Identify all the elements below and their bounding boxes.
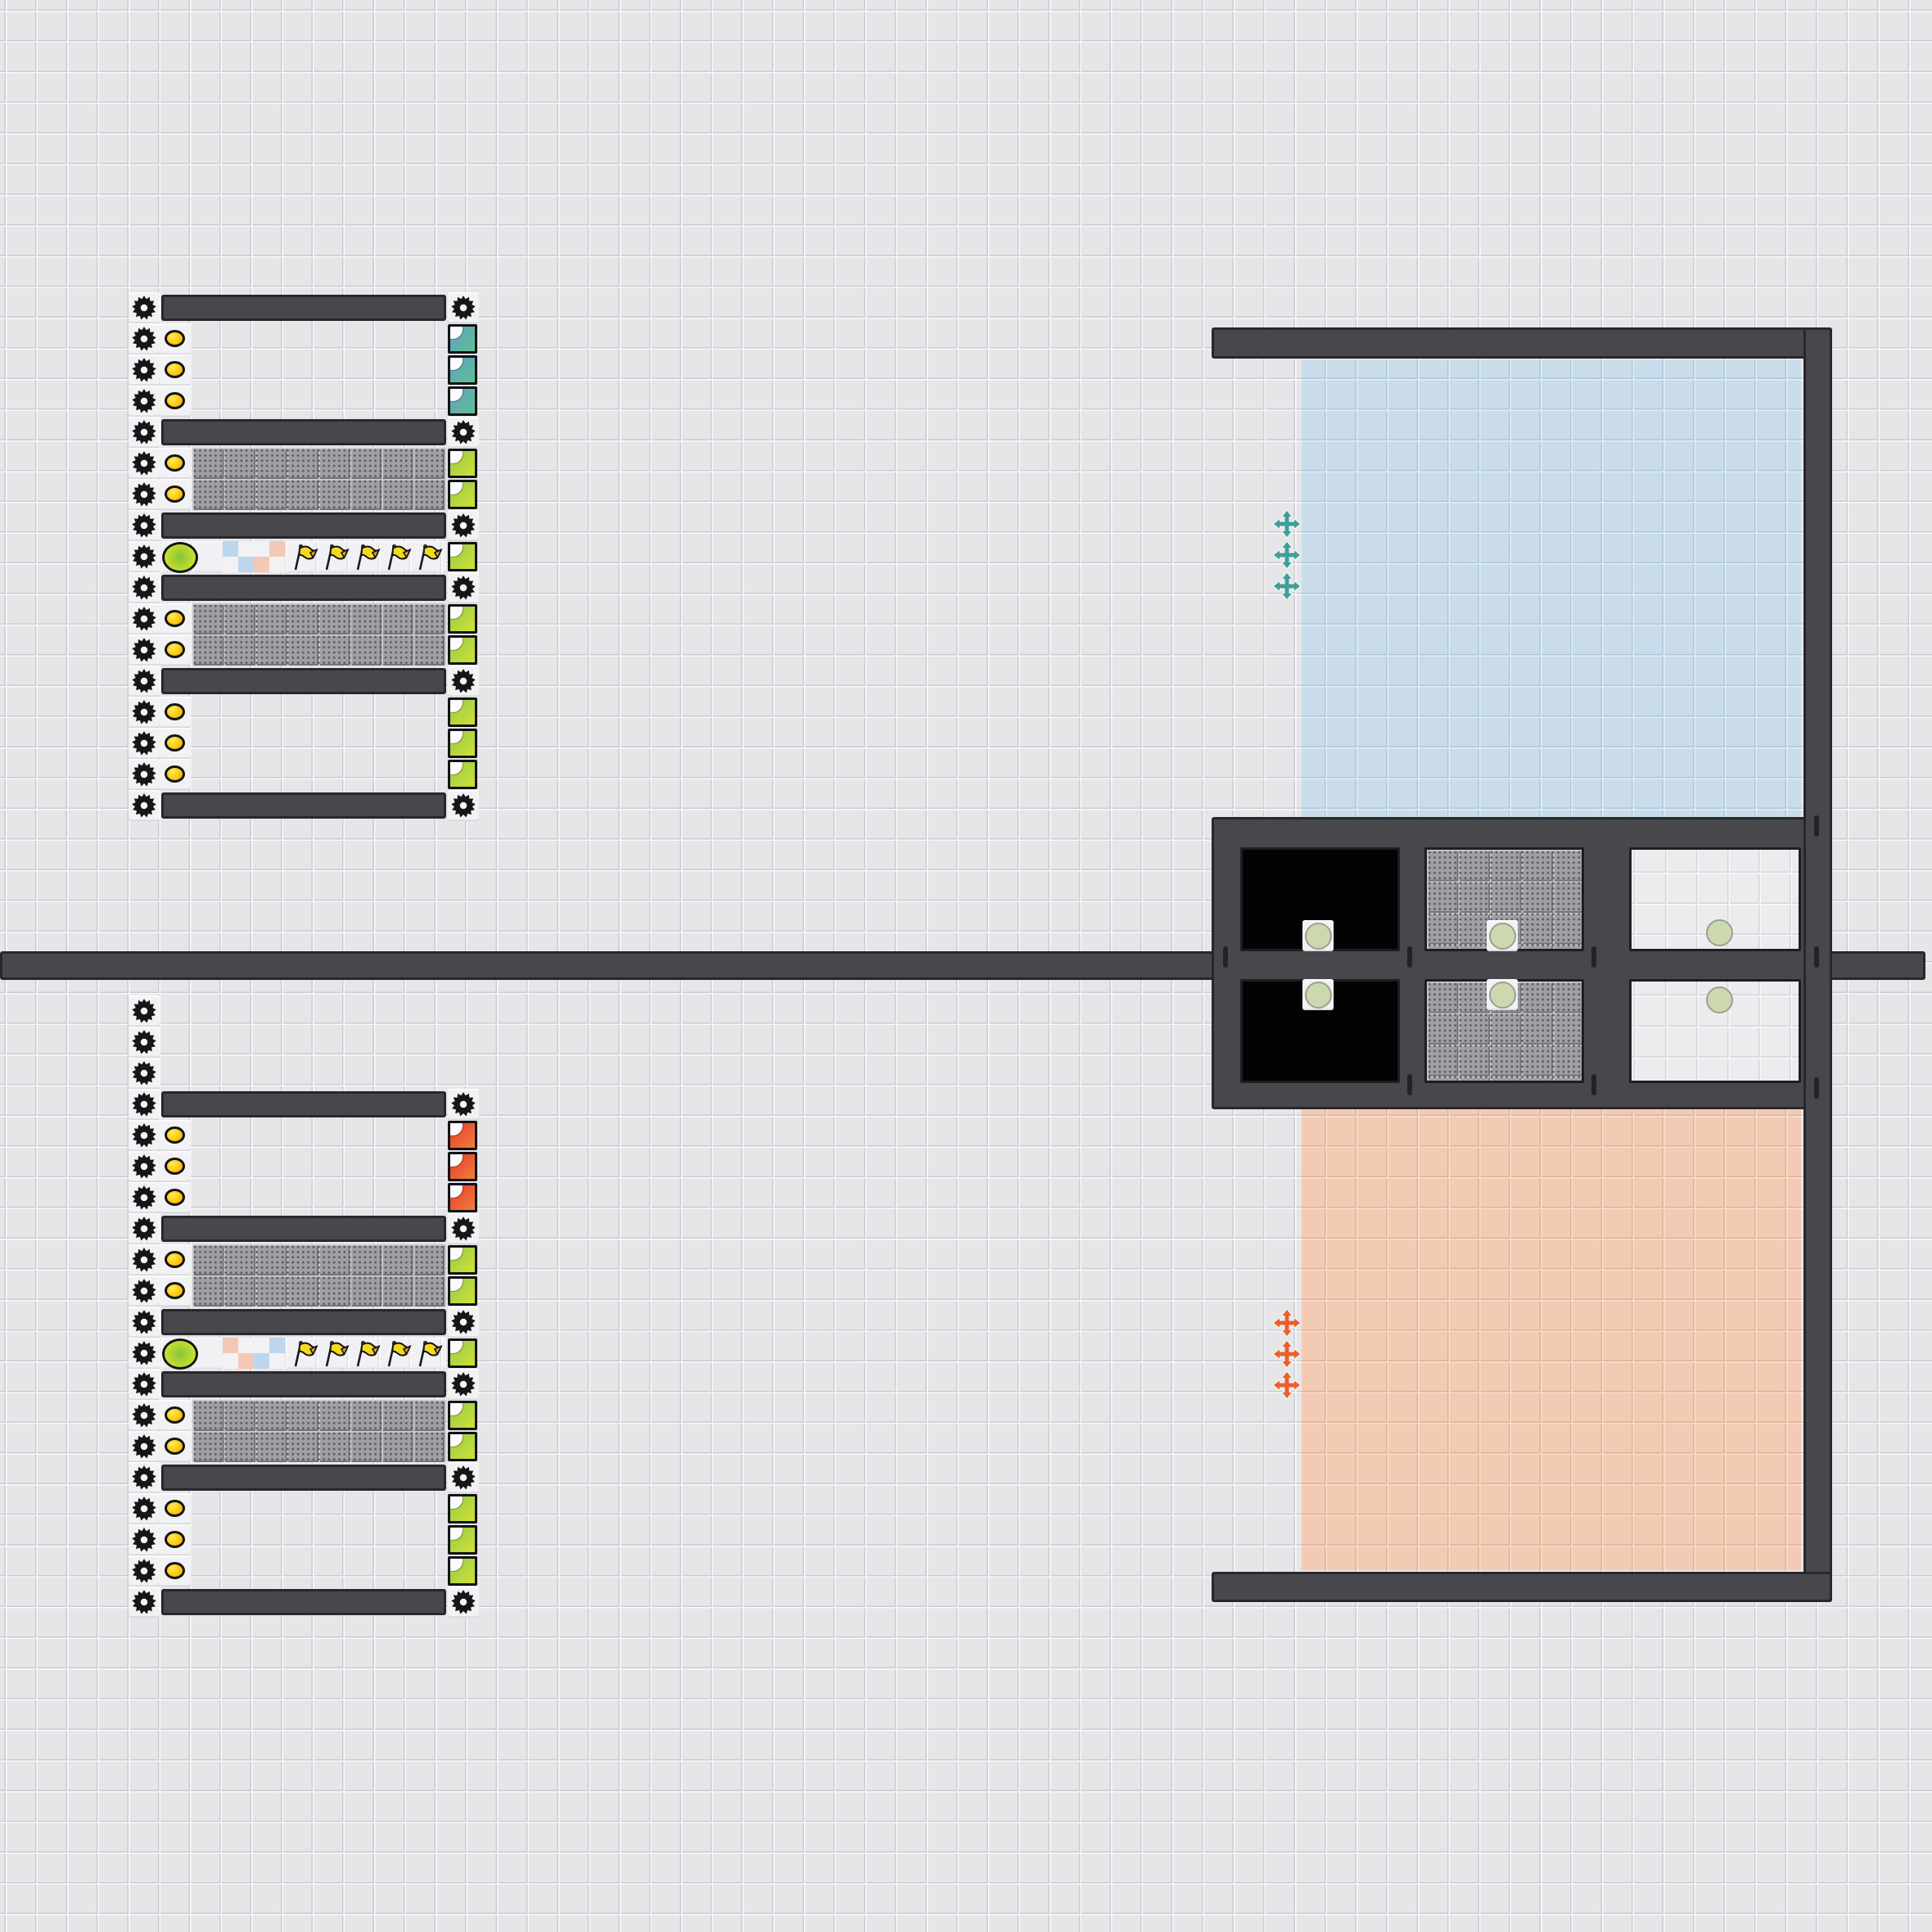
flag-icon[interactable] [351,1338,381,1368]
conveyor-bar-east[interactable] [1830,951,1925,980]
rack-bar[interactable] [161,1465,446,1491]
gear-icon[interactable] [130,1059,158,1087]
flag-icon[interactable] [351,542,381,571]
move-cross-icon-teal[interactable] [1272,540,1302,570]
rack-bar[interactable] [161,1371,446,1397]
door-tick [1814,1077,1819,1099]
io-dot[interactable] [165,765,185,783]
item-card-teal[interactable] [448,386,477,416]
flag-icon[interactable] [413,542,443,571]
rack-bar[interactable] [161,1589,446,1615]
gear-icon[interactable] [449,792,477,819]
feed-circle[interactable] [1489,982,1516,1009]
gear-icon[interactable] [130,792,158,819]
item-card-green[interactable] [448,1494,477,1523]
flag-icon[interactable] [382,1338,412,1368]
item-card-green[interactable] [448,1245,477,1275]
gear-icon[interactable] [449,667,477,695]
move-cross-icon-teal[interactable] [1272,509,1302,539]
gear-icon[interactable] [130,667,158,695]
gear-icon[interactable] [130,1246,158,1274]
feed-circle[interactable] [1706,986,1733,1013]
gear-icon[interactable] [449,574,477,602]
gear-icon[interactable] [130,1028,158,1056]
flag-icon[interactable] [320,1338,350,1368]
gear-icon[interactable] [130,418,158,446]
io-dot[interactable] [165,1562,185,1579]
zone-blue [1302,360,1801,817]
io-dot[interactable] [165,641,185,658]
io-dot[interactable] [165,1500,185,1517]
item-card-green[interactable] [448,449,477,478]
item-card-green[interactable] [448,542,477,571]
rack-bar[interactable] [161,668,446,694]
rack-bar[interactable] [161,1216,446,1242]
gear-icon[interactable] [130,1122,158,1149]
start-orb[interactable] [162,542,198,573]
gear-icon[interactable] [449,418,477,446]
flag-icon[interactable] [382,542,412,571]
item-card-green[interactable] [448,1556,477,1586]
door-tick [1407,1074,1412,1095]
feed-circle[interactable] [1305,982,1332,1009]
gear-icon[interactable] [130,1402,158,1429]
item-card-green[interactable] [448,1432,477,1461]
checker-marker-blue[interactable] [254,1338,285,1369]
rack-bar[interactable] [161,1309,446,1335]
gear-icon[interactable] [130,1495,158,1523]
rack-bar[interactable] [161,295,446,321]
checker-marker-pink[interactable] [254,541,285,572]
depot-bottom-wall[interactable] [1212,1572,1832,1602]
gear-icon[interactable] [130,1433,158,1460]
gear-icon[interactable] [449,1090,477,1118]
gear-icon[interactable] [130,1370,158,1398]
item-card-red[interactable] [448,1121,477,1150]
rack-bar[interactable] [161,792,446,819]
move-cross-icon-orange[interactable] [1272,1370,1302,1400]
rack-bar[interactable] [161,575,446,601]
gear-icon[interactable] [130,1277,158,1305]
item-card-green[interactable] [448,760,477,789]
hopper-grid-strip[interactable] [192,1400,446,1431]
feed-circle[interactable] [1489,923,1516,950]
gear-icon[interactable] [130,636,158,664]
gear-icon[interactable] [130,1215,158,1243]
io-dot[interactable] [165,1406,185,1424]
gear-icon[interactable] [130,574,158,602]
flag-icon[interactable] [413,1338,443,1368]
gear-icon[interactable] [130,481,158,508]
gear-icon[interactable] [449,1588,477,1616]
item-card-red[interactable] [448,1152,477,1181]
gear-icon[interactable] [130,1339,158,1367]
rack-bar[interactable] [161,1091,446,1117]
item-card-green[interactable] [448,1401,477,1430]
gear-icon[interactable] [130,543,158,571]
gear-icon[interactable] [130,1526,158,1554]
io-dot[interactable] [165,1251,185,1268]
feed-circle[interactable] [1706,919,1733,946]
item-card-green[interactable] [448,604,477,634]
gear-icon[interactable] [130,1464,158,1492]
gear-icon[interactable] [130,1153,158,1180]
flag-icon[interactable] [320,542,350,571]
conveyor-bar-west[interactable] [0,951,1217,980]
flag-icon[interactable] [289,542,318,571]
gear-icon[interactable] [130,698,158,726]
hopper-grid-strip[interactable] [192,448,446,479]
item-card-teal[interactable] [448,355,477,385]
gear-icon[interactable] [130,294,158,322]
gear-icon[interactable] [130,729,158,757]
item-card-green[interactable] [448,1338,477,1368]
feed-circle[interactable] [1305,923,1332,950]
flag-icon[interactable] [289,1338,318,1368]
item-card-red[interactable] [448,1183,477,1212]
start-orb[interactable] [162,1338,198,1370]
item-card-teal[interactable] [448,324,477,354]
io-dot[interactable] [165,734,185,752]
gear-icon[interactable] [130,761,158,788]
item-card-green[interactable] [448,635,477,665]
door-tick [1591,946,1596,968]
gear-icon[interactable] [130,997,158,1025]
item-card-green[interactable] [448,1276,477,1306]
gear-icon[interactable] [449,1215,477,1243]
item-card-green[interactable] [448,480,477,509]
io-dot[interactable] [165,485,185,503]
hopper-grid-strip[interactable] [192,1244,446,1275]
hopper-grid-strip[interactable] [192,634,446,666]
io-dot[interactable] [165,392,185,409]
gear-icon[interactable] [130,1557,158,1585]
gear-icon[interactable] [449,294,477,322]
gear-icon[interactable] [449,1308,477,1336]
rack-bar[interactable] [161,419,446,445]
io-dot[interactable] [165,330,185,347]
gear-icon[interactable] [130,605,158,633]
item-card-green[interactable] [448,697,477,727]
move-cross-icon-teal[interactable] [1272,571,1302,601]
gear-icon[interactable] [130,356,158,384]
gear-icon[interactable] [449,1370,477,1398]
io-dot[interactable] [165,1438,185,1455]
gear-icon[interactable] [130,1308,158,1336]
checker-marker-blue[interactable] [223,541,254,572]
rack-bar[interactable] [161,512,446,539]
move-cross-icon-orange[interactable] [1272,1308,1302,1338]
gear-icon[interactable] [130,512,158,539]
hopper-grid-strip[interactable] [192,1275,446,1307]
io-dot[interactable] [165,703,185,720]
io-dot[interactable] [165,1158,185,1175]
io-dot[interactable] [165,1189,185,1206]
depot-top-wall[interactable] [1212,327,1832,359]
gear-icon[interactable] [130,1184,158,1212]
game-canvas [0,0,1932,1932]
gear-icon[interactable] [130,1090,158,1118]
move-cross-icon-orange[interactable] [1272,1339,1302,1369]
item-card-green[interactable] [448,1525,477,1555]
hopper-grid-strip[interactable] [192,479,446,510]
gear-icon[interactable] [449,512,477,539]
gear-icon[interactable] [130,325,158,353]
door-tick [1814,815,1819,837]
checker-marker-pink[interactable] [223,1338,254,1369]
io-dot[interactable] [165,1126,185,1144]
io-dot[interactable] [165,361,185,378]
io-dot[interactable] [165,610,185,627]
item-card-green[interactable] [448,729,477,758]
gear-icon[interactable] [449,1464,477,1492]
hopper-grid-strip[interactable] [192,603,446,634]
door-tick [1814,946,1819,968]
door-tick [1223,946,1228,968]
door-tick [1407,946,1412,968]
zone-orange [1302,1109,1801,1570]
gear-icon[interactable] [130,449,158,477]
door-tick [1591,1074,1596,1095]
gear-icon[interactable] [130,1588,158,1616]
io-dot[interactable] [165,454,185,472]
io-dot[interactable] [165,1531,185,1548]
gear-icon[interactable] [130,387,158,415]
io-dot[interactable] [165,1282,185,1299]
hopper-grid-strip[interactable] [192,1431,446,1462]
